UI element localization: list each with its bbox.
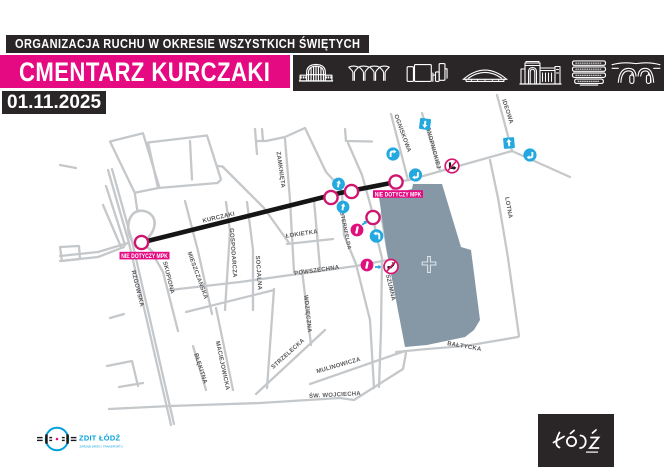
svg-text:ZAMKNIĘTA: ZAMKNIĘTA [274,151,285,189]
svg-text:LOTNA: LOTNA [503,197,513,220]
svg-text:ZARZĄD DRÓG I TRANSPORTU: ZARZĄD DRÓG I TRANSPORTU [80,444,123,449]
svg-text:NIE DOTYCZY MPK: NIE DOTYCZY MPK [375,192,422,198]
svg-text:ŁOKIETKA: ŁOKIETKA [285,229,318,239]
svg-text:BŁĘKITNA: BŁĘKITNA [192,353,208,386]
svg-text:STERNFELDA: STERNFELDA [338,211,352,250]
svg-text:ŚW. WOJCIECHA: ŚW. WOJCIECHA [309,390,362,400]
svg-text:POWSZECHNA: POWSZECHNA [294,265,340,277]
svg-text:NIE DOTYCZY MPK: NIE DOTYCZY MPK [121,254,168,260]
svg-text:ZDIT ŁÓDŹ: ZDIT ŁÓDŹ [79,434,120,443]
svg-text:MIESZCZAŃSKA: MIESZCZAŃSKA [186,250,211,300]
svg-text:SKUPIONA: SKUPIONA [161,261,175,295]
svg-text:STRZELECKA: STRZELECKA [271,338,307,371]
svg-text:WDZIĘCZNA: WDZIĘCZNA [302,295,312,334]
svg-text:SOCJALNA: SOCJALNA [254,255,262,290]
svg-text:MULINOWICZA: MULINOWICZA [316,357,362,375]
